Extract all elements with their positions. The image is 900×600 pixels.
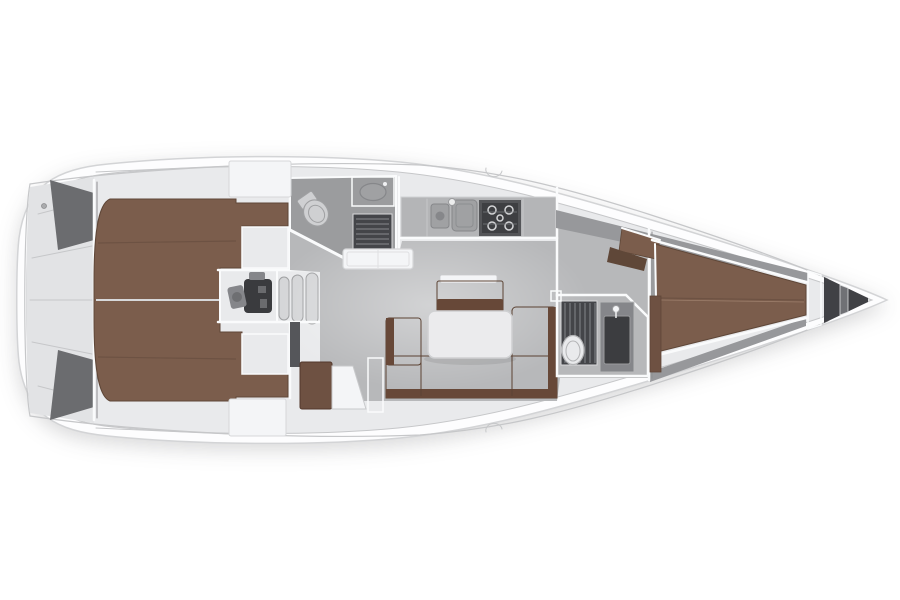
engine-detail [260,299,267,308]
settee-backrest-right [548,307,557,398]
saloon-table [428,311,512,358]
engine-detail [258,286,266,293]
settee-backrest-bottom [386,389,557,398]
faucet [383,182,387,186]
vanity-faucet [613,306,620,313]
yacht-floor-plan-image [0,0,900,600]
sink-drain [436,212,445,221]
engine-part [249,272,265,280]
vanity-door [604,316,630,364]
deck-hatch [343,249,413,269]
shower-grate-slats [356,219,389,249]
forward-head [551,291,648,376]
settee-backrest-left [386,318,394,365]
hanging-locker [650,296,661,372]
toilet-bowl-fwd [562,336,584,365]
anchor-locker-divider [840,285,848,315]
stern-lazarette [26,177,97,423]
sideboard-top [440,275,497,283]
partition-wall [290,322,300,367]
flywheel [232,292,242,302]
galley-faucet [449,199,456,206]
coachroof-box-bottom [229,399,286,436]
washbasin [360,184,386,201]
nav-cabinet [300,362,332,409]
engine-block [244,279,272,313]
shower-grate [353,214,392,252]
deck-fitting [42,204,47,209]
coachroof-box-top [229,161,291,197]
sideboard-shadow [437,299,503,312]
yacht-floor-plan [0,0,900,600]
